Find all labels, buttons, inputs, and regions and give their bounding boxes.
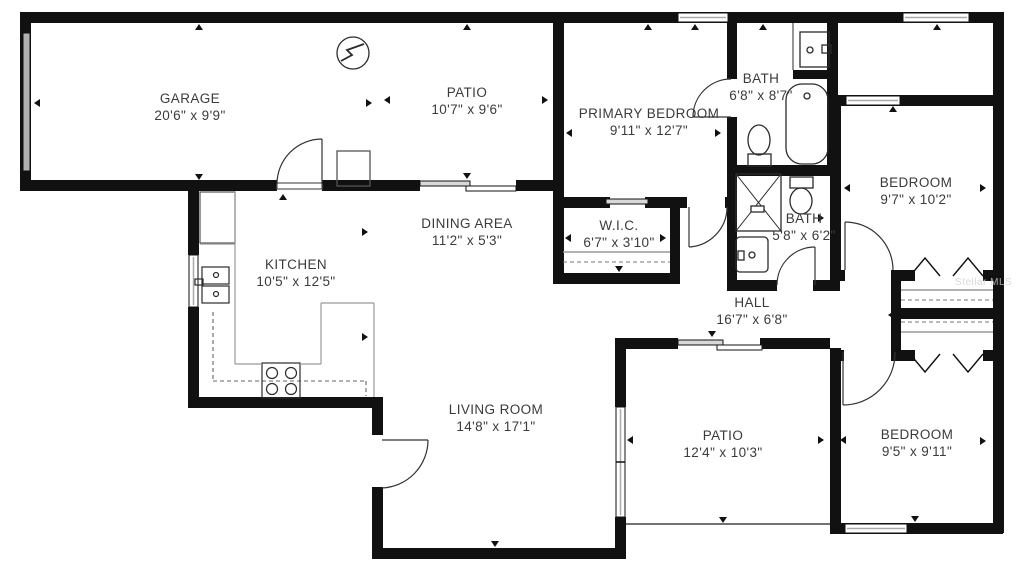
room-dims: 9'7" x 10'2" (880, 191, 953, 208)
tick-down (911, 516, 919, 522)
room-label-living: LIVING ROOM 14'8" x 17'1" (449, 401, 543, 435)
door-opening (372, 435, 383, 487)
watermark: Stellar MLS (955, 277, 1012, 288)
sink-drain (214, 273, 219, 278)
room-label-bath-top: BATH 6'8" x 8'7" (729, 70, 792, 104)
tick-up (279, 194, 287, 200)
wall (516, 180, 563, 191)
tick-down (708, 331, 716, 337)
tick-right (362, 333, 368, 341)
tick-left (565, 234, 571, 242)
room-dims: 5'8" x 6'2" (772, 227, 835, 244)
tick-down (615, 266, 623, 272)
room-name: BATH (729, 70, 792, 87)
floor-plan: GARAGE 20'6" x 9'9" PATIO 10'7" x 9'6" P… (0, 0, 1024, 577)
wall (645, 197, 687, 208)
sliding-door-panel (420, 181, 470, 186)
kitchen-sink (202, 286, 229, 303)
room-label-bedroom-top: BEDROOM 9'7" x 10'2" (880, 174, 953, 208)
tick-down (491, 541, 499, 547)
tick-right (660, 234, 666, 242)
sliding-door-panel (466, 186, 516, 191)
garage-fixtures (337, 37, 370, 186)
cabinet-handle (738, 251, 744, 260)
burner (267, 368, 278, 379)
wall (727, 280, 777, 291)
door-arc (689, 207, 727, 247)
wall (983, 350, 1003, 361)
room-label-kitchen: KITCHEN 10'5" x 12'5" (256, 256, 335, 290)
toilet-tank (790, 177, 813, 188)
door-arc (777, 247, 815, 285)
room-name: GARAGE (154, 90, 225, 107)
room-name: KITCHEN (256, 256, 335, 273)
wall (670, 197, 680, 284)
tick-down (719, 517, 727, 523)
door-opening (777, 280, 813, 291)
bifold-door-icon (953, 258, 983, 276)
tick-up (644, 24, 652, 30)
sink-drain (214, 292, 219, 297)
tick-right (366, 99, 372, 107)
room-label-bedroom-bottom: BEDROOM 9'5" x 9'11" (881, 426, 954, 460)
room-dims: 9'5" x 9'11" (881, 443, 954, 460)
door-arc (277, 139, 322, 184)
room-label-wic: W.I.C. 6'7" x 3'10" (583, 217, 654, 251)
wall (830, 350, 844, 361)
room-dims: 10'5" x 12'5" (256, 273, 335, 290)
wall (378, 12, 563, 23)
wall (830, 270, 845, 281)
tick-up (195, 24, 203, 30)
tick-right (980, 437, 986, 445)
sink-cabinet (736, 237, 768, 272)
room-label-garage: GARAGE 20'6" x 9'9" (154, 90, 225, 124)
room-label-bath-mid: BATH 5'8" x 6'2" (772, 210, 835, 244)
electrical-panel-icon (337, 37, 369, 69)
room-label-dining: DINING AREA 11'2" x 5'3" (421, 215, 512, 249)
wall (553, 12, 564, 284)
tick-up (691, 24, 699, 30)
tick-left (384, 96, 390, 104)
partition-wall (793, 70, 837, 79)
room-dims: 6'8" x 8'7" (729, 87, 792, 104)
wall (20, 180, 277, 191)
burner (267, 384, 278, 395)
room-name: BEDROOM (881, 426, 954, 443)
tick-right (362, 228, 368, 236)
tick-left (627, 436, 633, 444)
room-name: LIVING ROOM (449, 401, 543, 418)
wall (188, 397, 383, 408)
fridge (200, 192, 235, 243)
bifold-door-icon (953, 354, 983, 372)
wall (372, 548, 626, 559)
door-opening (844, 350, 891, 361)
tick-up (759, 24, 767, 30)
tick-left (34, 99, 40, 107)
tick-up (889, 106, 897, 112)
sink (800, 32, 829, 67)
wall (813, 280, 840, 291)
room-label-hall: HALL 16'7" x 6'8" (716, 294, 787, 328)
room-dims: 14'8" x 17'1" (449, 418, 543, 435)
sliding-door-panel (717, 345, 762, 350)
door-arc (845, 222, 893, 270)
wall (372, 487, 383, 549)
tick-up (933, 24, 941, 30)
tick-up (463, 24, 471, 30)
room-dims: 20'6" x 9'9" (154, 107, 225, 124)
wall (830, 95, 841, 281)
room-dims: 9'11" x 12'7" (579, 122, 720, 139)
wall (563, 197, 610, 208)
tick-left (566, 129, 572, 137)
room-name: PATIO (431, 84, 502, 101)
room-name: BATH (772, 210, 835, 227)
shower-valve (751, 206, 764, 212)
room-name: DINING AREA (421, 215, 512, 232)
wall (188, 183, 199, 255)
burner (286, 368, 297, 379)
kitchen-fixtures (195, 192, 374, 398)
sliding-door-panel (678, 340, 723, 345)
door-leaf (277, 183, 322, 189)
tick-down (195, 174, 203, 180)
room-label-patio-top: PATIO 10'7" x 9'6" (431, 84, 502, 118)
door-opening (845, 270, 891, 281)
tick-right (980, 184, 986, 192)
wall (20, 12, 378, 23)
room-label-patio-bottom: PATIO 12'4" x 10'3" (683, 427, 762, 461)
tub-drain (804, 93, 810, 99)
floor-plan-drawing (0, 0, 1024, 577)
wall (615, 338, 678, 349)
toilet-bowl (748, 125, 770, 155)
room-dims: 11'2" x 5'3" (421, 232, 512, 249)
room-name: BEDROOM (880, 174, 953, 191)
room-dims: 10'7" x 9'6" (431, 101, 502, 118)
tick-right (542, 96, 548, 104)
door-arc (382, 440, 428, 488)
room-name: HALL (716, 294, 787, 311)
lightning-icon (341, 44, 364, 61)
wall (830, 348, 841, 534)
wall (553, 273, 680, 284)
wall (615, 345, 626, 407)
tick-left (844, 184, 850, 192)
room-name: PATIO (683, 427, 762, 444)
door-opening (687, 197, 725, 208)
kitchen-sink (202, 267, 229, 284)
tick-right (818, 436, 824, 444)
room-dims: 16'7" x 6'8" (716, 311, 787, 328)
tick-down (463, 173, 471, 179)
wall (760, 338, 830, 349)
room-label-primary-bedroom: PRIMARY BEDROOM 9'11" x 12'7" (579, 105, 720, 139)
sliding-door-panel (606, 199, 648, 204)
room-name: W.I.C. (583, 217, 654, 234)
room-name: PRIMARY BEDROOM (579, 105, 720, 122)
burner (286, 384, 297, 395)
wall (188, 307, 199, 408)
wall (378, 180, 420, 191)
wall (895, 308, 1003, 319)
sink-drain (807, 47, 813, 53)
sink-drain (749, 252, 755, 258)
room-dims: 12'4" x 10'3" (683, 444, 762, 461)
room-dims: 6'7" x 3'10" (583, 234, 654, 251)
toilet-tank (748, 154, 771, 166)
garage-door (23, 33, 30, 171)
